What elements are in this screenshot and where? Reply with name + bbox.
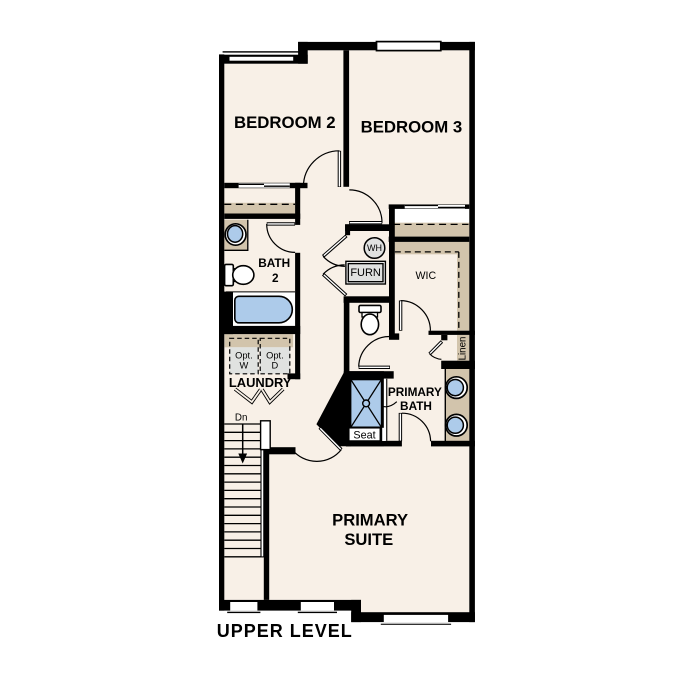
svg-text:BATH: BATH — [400, 399, 432, 413]
svg-text:BATH: BATH — [258, 256, 290, 270]
svg-text:Linen: Linen — [458, 337, 469, 361]
svg-text:UPPER LEVEL: UPPER LEVEL — [217, 621, 353, 641]
svg-text:LAUNDRY: LAUNDRY — [229, 375, 292, 390]
svg-text:PRIMARY: PRIMARY — [388, 385, 442, 399]
svg-text:W: W — [240, 360, 249, 370]
svg-text:2: 2 — [272, 271, 279, 285]
svg-text:FURN: FURN — [350, 267, 381, 279]
svg-text:Opt.: Opt. — [235, 350, 253, 360]
svg-text:Seat: Seat — [353, 430, 375, 442]
svg-text:Opt.: Opt. — [266, 350, 284, 360]
svg-text:BEDROOM 3: BEDROOM 3 — [361, 117, 463, 136]
svg-text:WH: WH — [367, 243, 382, 253]
svg-text:BEDROOM 2: BEDROOM 2 — [234, 113, 336, 132]
svg-text:WIC: WIC — [416, 270, 437, 282]
svg-text:PRIMARY: PRIMARY — [332, 511, 408, 530]
svg-text:SUITE: SUITE — [344, 530, 393, 549]
svg-text:Dn: Dn — [235, 413, 248, 424]
svg-text:D: D — [272, 360, 279, 370]
